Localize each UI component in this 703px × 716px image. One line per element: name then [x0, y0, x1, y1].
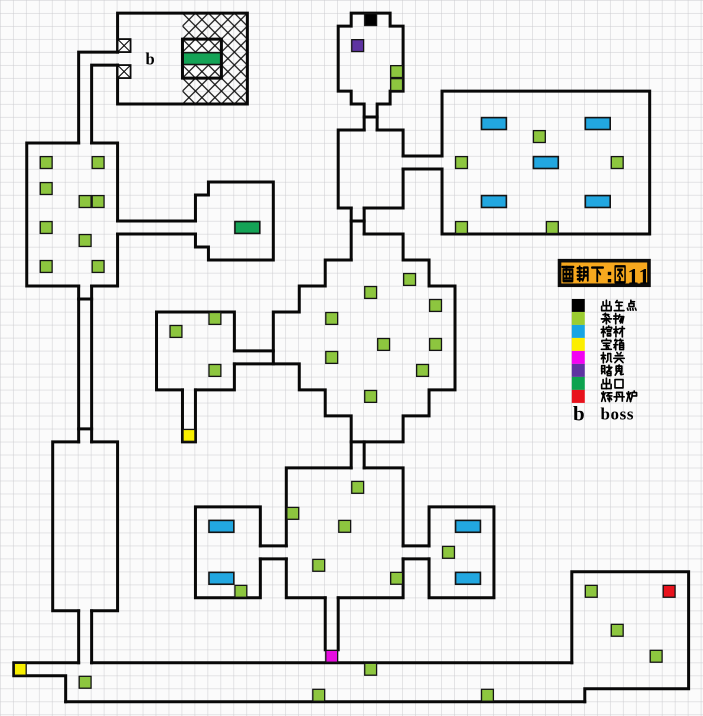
svg-text:boss: boss — [601, 405, 635, 424]
svg-text:b: b — [573, 402, 585, 426]
svg-text:b: b — [146, 50, 155, 69]
svg-text:11: 11 — [628, 263, 651, 288]
